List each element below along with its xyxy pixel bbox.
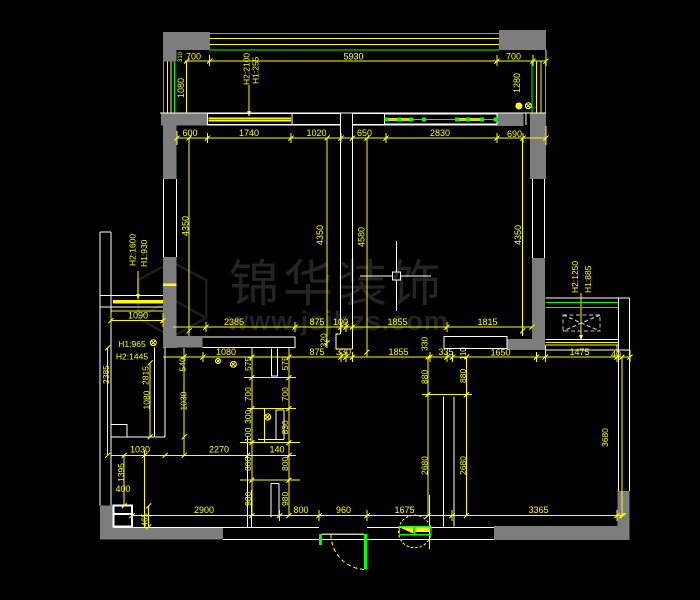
svg-text:H2:1250: H2:1250 [570, 261, 580, 293]
svg-text:310: 310 [178, 51, 184, 62]
svg-text:320: 320 [319, 333, 329, 347]
svg-text:100: 100 [333, 317, 348, 327]
svg-text:980: 980 [280, 492, 290, 506]
svg-text:H1:965: H1:965 [118, 339, 146, 349]
svg-text:1740: 1740 [239, 128, 259, 138]
svg-text:1090: 1090 [128, 311, 148, 321]
svg-text:1675: 1675 [394, 505, 414, 515]
svg-text:575: 575 [280, 356, 290, 370]
svg-text:300: 300 [243, 410, 253, 424]
svg-text:4350: 4350 [315, 225, 325, 245]
svg-text:800: 800 [280, 457, 290, 471]
svg-text:1280: 1280 [512, 73, 522, 93]
svg-text:700: 700 [280, 387, 290, 401]
svg-text:330: 330 [336, 347, 351, 357]
svg-text:465: 465 [140, 513, 149, 527]
svg-text:100: 100 [243, 428, 253, 442]
svg-text:2385: 2385 [224, 317, 244, 327]
svg-text:H1:255: H1:255 [251, 56, 261, 84]
svg-text:960: 960 [336, 505, 351, 515]
svg-text:2815: 2815 [141, 366, 151, 385]
svg-text:2900: 2900 [194, 505, 214, 515]
svg-text:1815: 1815 [477, 317, 497, 327]
svg-text:140: 140 [269, 445, 284, 455]
svg-text:1080: 1080 [176, 78, 186, 98]
svg-text:980: 980 [243, 492, 253, 506]
svg-text:5930: 5930 [343, 52, 363, 62]
svg-text:1080: 1080 [216, 347, 236, 357]
svg-text:1030: 1030 [130, 445, 150, 455]
svg-text:2680: 2680 [420, 456, 430, 475]
svg-text:650: 650 [357, 128, 372, 138]
svg-text:1855: 1855 [388, 347, 408, 357]
svg-text:880: 880 [458, 369, 468, 383]
svg-text:830: 830 [280, 420, 290, 434]
svg-text:1020: 1020 [306, 128, 326, 138]
svg-text:1475: 1475 [569, 347, 589, 357]
svg-text:575: 575 [243, 357, 253, 371]
svg-text:锦华装饰: 锦华装饰 [229, 256, 445, 312]
svg-text:H1:885: H1:885 [583, 265, 593, 293]
svg-text:800: 800 [243, 457, 253, 471]
svg-text:1080: 1080 [142, 390, 152, 409]
svg-text:2270: 2270 [209, 445, 229, 455]
svg-text:H2:1445: H2:1445 [116, 352, 148, 362]
svg-text:400: 400 [115, 484, 130, 494]
svg-text:3365: 3365 [528, 505, 548, 515]
svg-text:4580: 4580 [357, 227, 367, 247]
svg-text:H2:1600: H2:1600 [128, 234, 138, 266]
svg-text:3680: 3680 [600, 428, 610, 447]
svg-text:2680: 2680 [458, 456, 468, 475]
svg-text:690: 690 [507, 129, 522, 139]
svg-text:1030: 1030 [179, 391, 189, 410]
svg-text:800: 800 [293, 505, 308, 515]
svg-text:875: 875 [309, 317, 324, 327]
svg-text:700: 700 [243, 387, 253, 401]
svg-text:4350: 4350 [513, 225, 523, 245]
svg-text:540: 540 [178, 357, 188, 371]
svg-text:880: 880 [420, 370, 430, 384]
svg-text:1395: 1395 [116, 463, 126, 482]
svg-text:H1:930: H1:930 [139, 239, 149, 267]
svg-text:4350: 4350 [181, 216, 191, 236]
svg-text:875: 875 [309, 347, 324, 357]
svg-text:600: 600 [182, 128, 197, 138]
svg-text:1855: 1855 [387, 317, 407, 327]
svg-text:2385: 2385 [101, 365, 111, 384]
svg-text:330: 330 [420, 337, 430, 351]
svg-text:2830: 2830 [430, 128, 450, 138]
svg-text:700: 700 [506, 52, 521, 62]
